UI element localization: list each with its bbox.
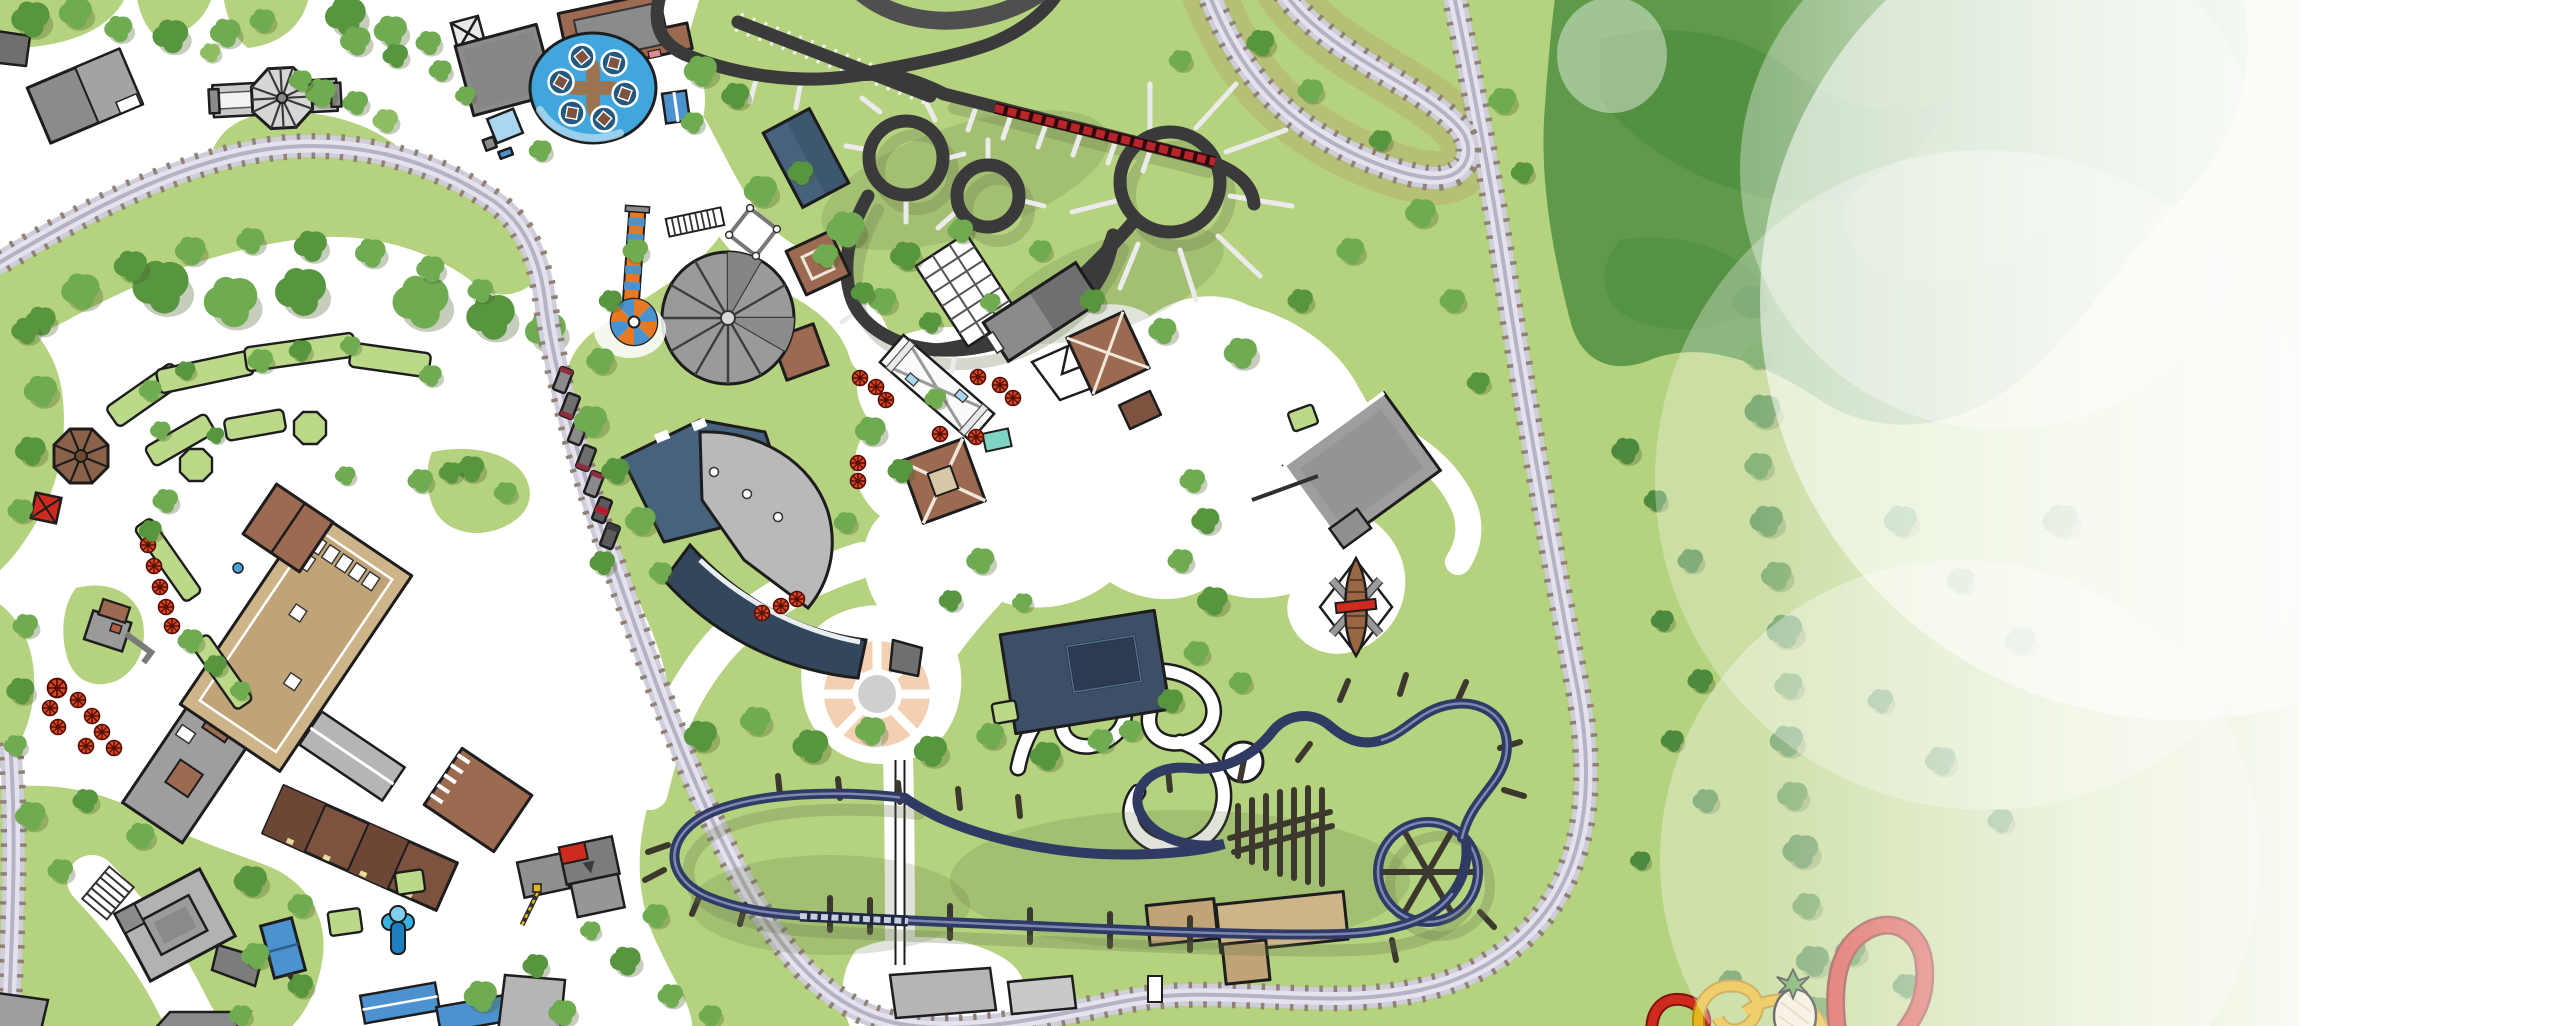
park-map-viewport: Illustrated theme park overview map (top…: [0, 0, 2560, 1026]
canopy-hut: [483, 137, 497, 151]
grey-pad-2: [1008, 976, 1076, 1014]
water-barrel: [233, 563, 243, 573]
white-fade-overlay: [1557, 0, 2560, 1026]
plaza-pavilion: [890, 640, 922, 676]
railway-left-edge: [8, 742, 14, 1026]
red-square-umbrella: [31, 493, 62, 524]
family-coaster-train: [800, 916, 908, 921]
carousel: [662, 252, 794, 384]
grey-pad-1: [890, 968, 996, 1018]
bokeh-circle-small: [1557, 0, 1667, 113]
park-map-canvas[interactable]: Illustrated theme park overview map (top…: [0, 0, 2560, 1026]
red-parasol-octagon: [54, 429, 108, 483]
